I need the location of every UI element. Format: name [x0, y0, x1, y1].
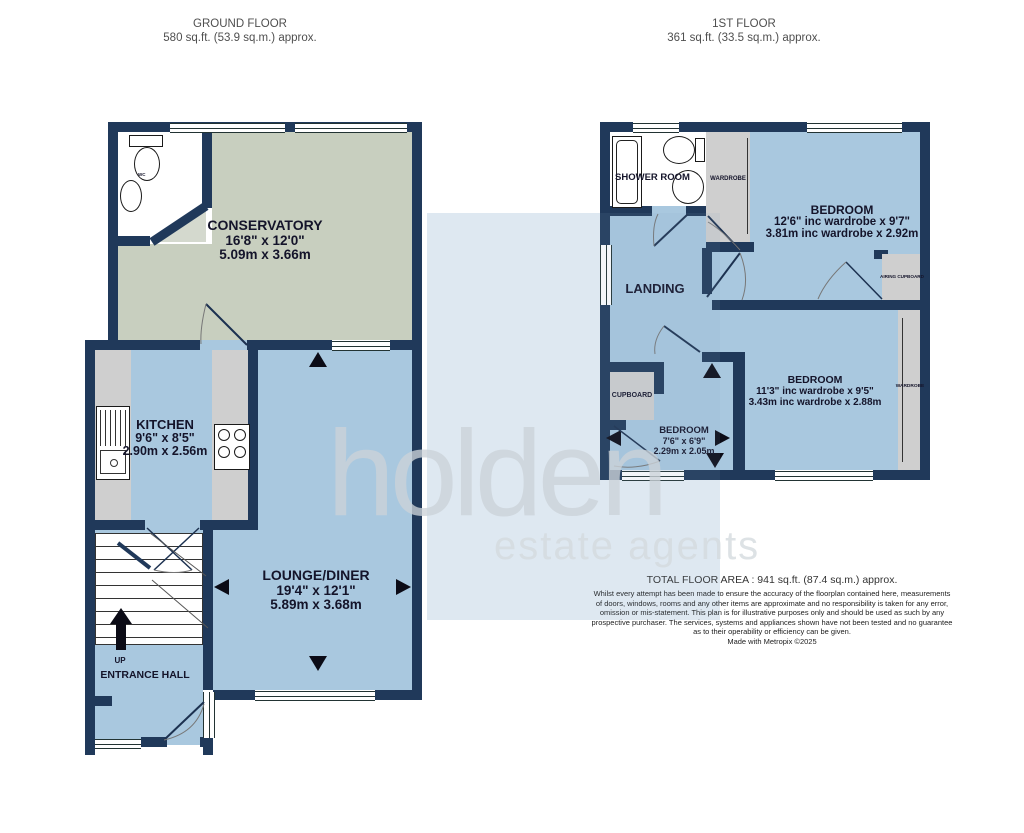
lounge-dims-metric: 5.89m x 3.68m — [216, 597, 416, 612]
wc-wall-right — [202, 132, 212, 208]
lounge-dims-imperial: 19'4" x 12'1" — [216, 583, 416, 598]
total-floor-area: TOTAL FLOOR AREA : 941 sq.ft. (87.4 sq.m… — [580, 574, 964, 586]
kitchen-dims-metric: 2.90m x 2.56m — [95, 444, 235, 458]
ground-wall-top-1 — [85, 340, 200, 350]
bedroom1-label: BEDROOM — [742, 203, 942, 217]
lounge-floor-main — [258, 350, 412, 690]
ff-window-top-1 — [633, 123, 679, 133]
ff-wall-bottom-2 — [684, 470, 775, 480]
conservatory-label: CONSERVATORY — [165, 217, 365, 233]
disclaimer-line: of doors, windows, rooms and any other i… — [578, 599, 966, 609]
conservatory-dims-metric: 5.09m x 3.66m — [165, 247, 365, 262]
hob-burner-2 — [234, 429, 246, 441]
kitchen-bottom-wall-1 — [85, 520, 145, 530]
bedroom2-dims-metric: 3.43m inc wardrobe x 2.88m — [715, 397, 915, 408]
hall-front-window — [95, 739, 141, 749]
ff-toilet-bowl — [663, 136, 695, 164]
ff-wall-right — [920, 122, 930, 480]
stairs-up-arrow-shaft — [116, 622, 126, 650]
lounge-arrow-up — [309, 352, 327, 367]
kitchen-sink-drain — [110, 459, 118, 467]
bedroom1-dims-metric: 3.81m inc wardrobe x 2.92m — [742, 228, 942, 240]
ff-wall-bottom-3 — [873, 470, 930, 480]
airing-cupboard-label: AIRING CUPBOARD — [880, 274, 922, 279]
disclaimer: Whilst every attempt has been made to en… — [578, 589, 966, 647]
conservatory-lounge-window — [332, 341, 390, 351]
cupboard-wall-top — [604, 362, 664, 372]
hall-left-stub — [85, 696, 112, 706]
conservatory-window-2 — [295, 123, 407, 133]
wc-basin — [120, 180, 142, 212]
cupboard-wall-bottom-stub — [604, 420, 626, 430]
ground-floor-title: GROUND FLOOR 580 sq.ft. (53.9 sq.m.) app… — [90, 17, 390, 45]
hall-bottom-wall-2 — [200, 737, 213, 747]
bed3-top-stub — [702, 352, 733, 362]
wardrobe-front-stub — [706, 242, 754, 252]
landing-window — [600, 245, 612, 305]
up-label: UP — [100, 656, 140, 665]
staircase — [95, 533, 203, 645]
cupboard-wall-right-stub — [654, 372, 664, 394]
first-floor-title: 1ST FLOOR 361 sq.ft. (33.5 sq.m.) approx… — [594, 17, 894, 45]
shower-room-label: SHOWER ROOM — [605, 172, 700, 183]
lounge-bottom-wall-1 — [213, 690, 255, 700]
ff-window-top-2 — [807, 123, 902, 133]
entrance-hall-label: ENTRANCE HALL — [75, 669, 215, 681]
lounge-label: LOUNGE/DINER — [216, 567, 416, 583]
bed3-bed2-wall — [733, 352, 745, 470]
ff-window-bottom-1 — [622, 471, 684, 481]
bedroom2-label: BEDROOM — [715, 374, 915, 386]
disclaimer-line: Whilst every attempt has been made to en… — [578, 589, 966, 599]
conservatory-wall-left — [108, 122, 118, 350]
disclaimer-line: prospective purchaser. The services, sys… — [578, 618, 966, 628]
hob-burner-4 — [234, 446, 246, 458]
lounge-bottom-wall-2 — [375, 690, 422, 700]
hall-lounge-wall — [203, 530, 213, 690]
bedroom3-dims-metric: 2.29m x 2.05m — [634, 446, 734, 456]
first-floor-area: 361 sq.ft. (33.5 sq.m.) approx. — [594, 31, 894, 45]
metropix-credit: Made with Metropix ©2025 — [578, 637, 966, 647]
bedroom3-arrow-left — [606, 430, 621, 446]
bedroom2-dims-imperial: 11'3" inc wardrobe x 9'5" — [715, 386, 915, 397]
bed1-bed2-wall — [712, 300, 920, 310]
floorplan-canvas: GROUND FLOOR 580 sq.ft. (53.9 sq.m.) app… — [0, 0, 1024, 833]
conservatory-window-1 — [170, 123, 285, 133]
ff-wall-left-1 — [600, 122, 610, 245]
wc-label: WC — [138, 172, 146, 177]
lounge-arrow-down — [309, 656, 327, 671]
conservatory-wall-right — [412, 122, 422, 350]
first-floor-name: 1ST FLOOR — [594, 17, 894, 31]
kitchen-dims-imperial: 9'6" x 8'5" — [95, 431, 235, 445]
ground-wall-left — [85, 340, 95, 755]
ground-floor-name: GROUND FLOOR — [90, 17, 390, 31]
kitchen-label: KITCHEN — [95, 417, 235, 432]
bedroom3-label: BEDROOM — [634, 425, 734, 436]
wardrobe-front-label: WARDROBE — [700, 176, 756, 182]
hall-side-window — [203, 692, 215, 738]
wardrobe-rear-label: WARDROBE — [893, 384, 927, 389]
wc-wall-bottom-stub — [118, 236, 150, 246]
bedroom1-dims-imperial: 12'6" inc wardrobe x 9'7" — [742, 216, 942, 228]
disclaimer-line: as to their operability or efficiency ca… — [578, 627, 966, 637]
ground-floor-area: 580 sq.ft. (53.9 sq.m.) approx. — [90, 31, 390, 45]
bedroom3-dims-imperial: 7'6" x 6'9" — [634, 436, 734, 446]
hall-bottom-wall-1 — [141, 737, 167, 747]
lounge-window — [255, 691, 375, 701]
conservatory-dims-imperial: 16'8" x 12'0" — [165, 233, 365, 248]
ground-wall-top-2 — [247, 340, 332, 350]
kitchen-bottom-wall-2 — [200, 520, 258, 530]
doorway-kitchen-conservatory — [200, 340, 247, 350]
cupboard-label: CUPBOARD — [608, 392, 656, 399]
ff-window-bottom-2 — [775, 471, 873, 481]
wc-toilet-cistern — [129, 135, 163, 147]
landing-label: LANDING — [605, 281, 705, 296]
ground-wall-right — [412, 340, 422, 700]
ff-wall-top-2 — [679, 122, 807, 132]
disclaimer-line: omission or mis-statement. This plan is … — [578, 608, 966, 618]
ff-toilet-cistern — [695, 138, 705, 162]
ff-wall-bottom-1 — [600, 470, 622, 480]
